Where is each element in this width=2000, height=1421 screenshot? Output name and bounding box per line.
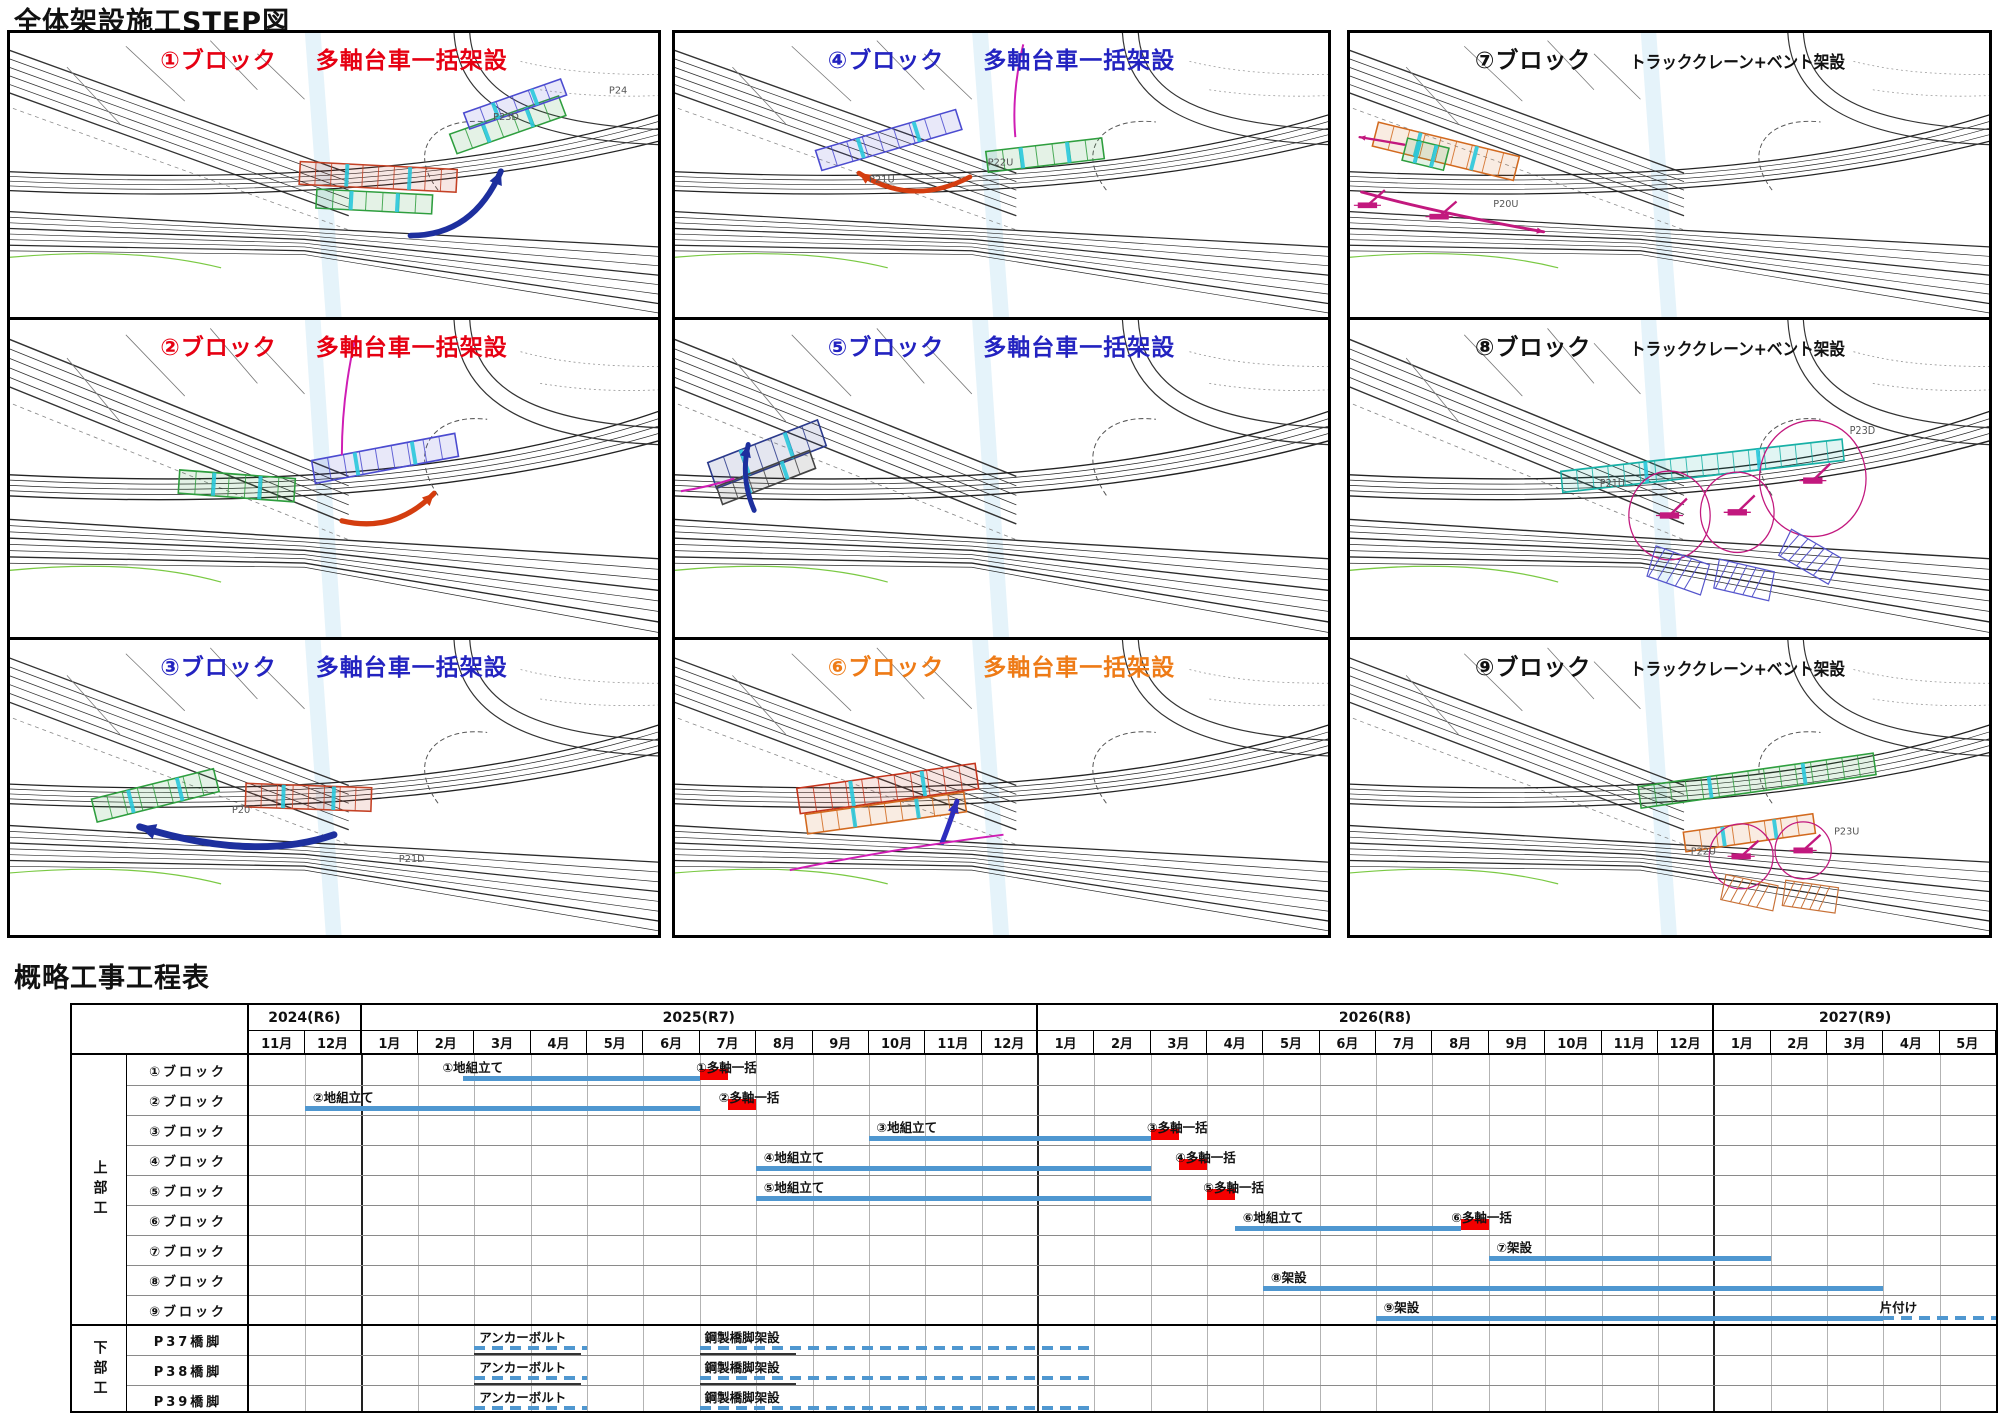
pier-label: P21U [869,175,895,186]
gantt-month-header: 8月 [1432,1031,1488,1055]
gantt-bar-label: アンカーボルト [479,1387,566,1406]
gantt-month-header: 6月 [1320,1031,1376,1055]
pier-label: P23U [1834,827,1859,838]
gantt-gridline [925,1055,926,1411]
gantt-bar-label: 鋼製橋脚架設 [705,1357,780,1376]
gantt-gridline [1658,1055,1659,1411]
gantt-bar-dashed [1883,1316,1996,1320]
movement-arrow [140,827,334,847]
gantt-month-header: 10月 [869,1031,925,1055]
panel-title: ③ブロック 多軸台車一括架設 [10,648,658,682]
gantt-gridline [1432,1055,1433,1411]
gantt-bar-dashed [474,1346,587,1350]
gantt-month-header: 12月 [305,1031,361,1055]
gantt-section-label: 下部工 [72,1325,127,1415]
gantt-row-line [127,1145,1996,1146]
gantt-row-line [127,1085,1996,1086]
gantt-row-label: ①ブロック [127,1055,249,1085]
step-panel-5: ⑤ブロック 多軸台車一括架設 [675,317,1328,637]
girder-block [91,769,219,822]
gantt-gridline [1320,1055,1321,1411]
gantt-gridline [1489,1055,1490,1411]
gantt-gridline [1376,1055,1377,1411]
gantt-month-header: 4月 [531,1031,587,1055]
gantt-row-label: P38橋脚 [127,1355,249,1385]
crane-symbol [1790,835,1821,854]
gantt-gridline [1037,1055,1039,1411]
gantt-bar-dashed [700,1406,1094,1410]
gantt-bar-label: 鋼製橋脚架設 [705,1327,780,1346]
site-plan-svg: P21UP23D [1350,320,1989,637]
panel-method-label: トラッククレーン+ベント架設 [1630,48,1845,73]
site-plan-svg [675,320,1328,637]
girder-block [245,783,371,811]
gantt-gridline [982,1055,983,1411]
panel-block-label: ①ブロック [160,48,276,74]
step-panel-column-middle: P21UP22U ④ブロック 多軸台車一括架設 ⑤ブロック 多軸台車一括架設 ⑥… [672,30,1331,938]
pier-label: P20 [232,805,250,816]
gantt-section-divider [72,1324,1996,1326]
gantt-row-label: ④ブロック [127,1145,249,1175]
step-panel-column-right: P20U ⑦ブロック トラッククレーン+ベント架設 P21UP23D ⑧ブロック… [1347,30,1992,938]
panel-method-label: トラッククレーン+ベント架設 [1630,335,1845,360]
site-plan-drawing: P21UP22U [675,33,1328,317]
gantt-mark-line [474,1383,581,1385]
gantt-month-header: 2月 [1094,1031,1150,1055]
gantt-gridline [1094,1055,1095,1411]
gantt-bar-label: 片付け [1880,1297,1918,1316]
panel-title: ⑤ブロック 多軸台車一括架設 [675,328,1328,362]
gantt-bar-dashed [474,1376,587,1380]
gantt-month-header: 1月 [1038,1031,1094,1055]
gantt-row-line [127,1385,1996,1386]
gantt-row-label: P37橋脚 [127,1325,249,1355]
gantt-month-header: 11月 [1602,1031,1658,1055]
site-plan-drawing: P22UP23U [1350,640,1989,935]
pier-label: P24 [609,86,627,97]
step-panel-9: P22UP23U ⑨ブロック トラッククレーン+ベント架設 [1350,637,1989,935]
gantt-month-header: 5月 [1263,1031,1319,1055]
gantt-bar-dashed [474,1406,587,1410]
panel-title: ④ブロック 多軸台車一括架設 [675,41,1328,75]
gantt-row-label: ⑤ブロック [127,1175,249,1205]
gantt-month-header: 3月 [1827,1031,1883,1055]
panel-block-label: ⑨ブロック [1475,655,1591,681]
site-plan-svg [10,320,658,637]
gantt-month-header: 9月 [813,1031,869,1055]
gantt-bar-label: ⑥多軸一括 [1451,1207,1512,1226]
gantt-month-header: 5月 [1940,1031,1996,1055]
gantt-mark-line [700,1353,796,1355]
gantt-mark-line [474,1353,581,1355]
movement-arrow [1362,192,1544,232]
gantt-bar-label: ⑧架設 [1271,1267,1307,1286]
gantt-bar-label: ①地組立て [443,1057,504,1076]
gantt-bar-label: ③地組立て [877,1117,938,1136]
gantt-month-header: 6月 [643,1031,699,1055]
site-plan-svg: P23DP24 [10,33,658,317]
gantt-bar-label: ⑦架設 [1496,1237,1532,1256]
gantt-month-header: 8月 [756,1031,812,1055]
gantt-gridline [869,1055,870,1411]
gantt-col-separator [126,1055,127,1411]
movement-arrow [342,493,434,524]
site-plan-drawing [675,640,1328,935]
panel-block-label: ⑧ブロック [1475,335,1591,361]
gantt-col-separator [247,1055,249,1411]
gantt-bar-label: ②地組立て [313,1087,374,1106]
panel-method-label: 多軸台車一括架設 [983,648,1175,682]
gantt-section-label: 上部工 [72,1055,127,1325]
gantt-bar-solid [463,1076,700,1081]
girder-block [312,433,459,483]
panel-method-label: 多軸台車一括架設 [983,41,1175,75]
gantt-bar-label: アンカーボルト [479,1327,566,1346]
gantt-month-header: 7月 [1376,1031,1432,1055]
gantt-bar-solid [1263,1286,1883,1291]
gantt-gridline [1545,1055,1546,1411]
gantt-month-header: 7月 [700,1031,756,1055]
site-plan-svg: P20P21D [10,640,658,935]
step-panel-6: ⑥ブロック 多軸台車一括架設 [675,637,1328,935]
step-panel-2: ②ブロック 多軸台車一括架設 [10,317,658,637]
panel-block-label: ⑤ブロック [828,335,944,361]
gantt-bar-label: ⑥地組立て [1243,1207,1304,1226]
crane-symbol [1724,495,1755,515]
gantt-bar-label: ③多軸一括 [1147,1117,1208,1136]
gantt-month-header: 11月 [925,1031,981,1055]
gantt-month-header: 10月 [1545,1031,1601,1055]
gantt-month-header: 1月 [1714,1031,1770,1055]
gantt-year-header: 2025(R7) [362,1005,1038,1031]
site-plan-drawing: P23DP24 [10,33,658,317]
gantt-month-header: 11月 [249,1031,305,1055]
gantt-month-header: 1月 [362,1031,418,1055]
gantt-gridline [813,1055,814,1411]
gantt-bar-label: アンカーボルト [479,1357,566,1376]
gantt-bar-dashed [700,1346,1094,1350]
gantt-row-label: P39橋脚 [127,1385,249,1415]
gantt-year-header: 2027(R9) [1714,1005,1996,1031]
gantt-bar-label: ①多軸一括 [696,1057,757,1076]
pier-label: P23D [493,112,519,123]
pier-label: P22U [1691,846,1716,857]
panel-title: ②ブロック 多軸台車一括架設 [10,328,658,362]
site-plan-svg: P20U [1350,33,1989,317]
gantt-bar-solid [756,1196,1150,1201]
gantt-bar-solid [305,1106,699,1111]
step-panel-7: P20U ⑦ブロック トラッククレーン+ベント架設 [1350,33,1989,317]
gantt-gridline [1883,1055,1884,1411]
panel-title: ⑥ブロック 多軸台車一括架設 [675,648,1328,682]
pier-label: P20U [1493,199,1518,210]
site-plan-svg: P22UP23U [1350,640,1989,935]
panel-method-label: 多軸台車一括架設 [316,328,508,362]
site-plan-svg [675,640,1328,935]
step-panel-column-left: P23DP24 ①ブロック 多軸台車一括架設 ②ブロック 多軸台車一括架設 P2… [7,30,661,938]
gantt-month-header: 2月 [418,1031,474,1055]
gantt-bar-solid [1489,1256,1771,1261]
panel-block-label: ③ブロック [160,655,276,681]
gantt-row-label: ⑥ブロック [127,1205,249,1235]
step-panel-8: P21UP23D ⑧ブロック トラッククレーン+ベント架設 [1350,317,1989,637]
gantt-gridline [1940,1055,1941,1411]
site-plan-drawing [10,320,658,637]
gantt-month-header: 3月 [474,1031,530,1055]
gantt-bar-dashed [700,1376,1094,1380]
panel-title: ⑧ブロック トラッククレーン+ベント架設 [1350,328,1989,362]
panel-method-label: 多軸台車一括架設 [316,648,508,682]
panel-title: ⑨ブロック トラッククレーン+ベント架設 [1350,648,1989,682]
gantt-bar-solid [1235,1226,1460,1231]
gantt-corner-cell [72,1005,249,1055]
gantt-year-header: 2026(R8) [1038,1005,1714,1031]
pier-label: P22U [988,158,1014,169]
gantt-row-line [127,1295,1996,1296]
step-panel-4: P21UP22U ④ブロック 多軸台車一括架設 [675,33,1328,317]
gantt-month-header: 5月 [587,1031,643,1055]
gantt-gridline [1207,1055,1208,1411]
gantt-row-line [127,1175,1996,1176]
panel-block-label: ②ブロック [160,335,276,361]
construction-step-sheet: { "page": { "step_title": "全体架設施工STEP図",… [0,0,2000,1421]
girder-block [178,470,295,502]
gantt-gridline [1827,1055,1828,1411]
gantt-gridline [1771,1055,1772,1411]
bent-staging-area [1782,880,1838,913]
gantt-gridline [700,1055,701,1411]
gantt-bar-solid [756,1166,1150,1171]
panel-method-label: 多軸台車一括架設 [316,41,508,75]
gantt-row-line [127,1235,1996,1236]
gantt-gridline [1151,1055,1152,1411]
gantt-month-header: 2月 [1771,1031,1827,1055]
panel-block-label: ⑦ブロック [1475,48,1591,74]
step-panel-1: P23DP24 ①ブロック 多軸台車一括架設 [10,33,658,317]
gantt-gridline [1713,1055,1715,1411]
gantt-row-label: ②ブロック [127,1085,249,1115]
gantt-row-label: ⑦ブロック [127,1235,249,1265]
panel-title: ⑦ブロック トラッククレーン+ベント架設 [1350,41,1989,75]
pier-label: P21D [399,854,425,865]
site-plan-drawing: P20P21D [10,640,658,935]
gantt-row-label: ③ブロック [127,1115,249,1145]
gantt-month-header: 9月 [1489,1031,1545,1055]
site-plan-drawing [675,320,1328,637]
panel-title: ①ブロック 多軸台車一括架設 [10,41,658,75]
gantt-bar-label: 鋼製橋脚架設 [705,1387,780,1406]
site-plan-drawing: P20U [1350,33,1989,317]
gantt-bar-label: ②多軸一括 [719,1087,780,1106]
gantt-month-header: 12月 [1658,1031,1714,1055]
gantt-month-header: 3月 [1151,1031,1207,1055]
gantt-gridline [1602,1055,1603,1411]
gantt-title: 概略工事工程表 [14,956,210,995]
gantt-bar-label: ④地組立て [764,1147,825,1166]
gantt-month-header: 4月 [1883,1031,1939,1055]
gantt-bar-solid [1376,1316,1883,1321]
site-plan-svg: P21UP22U [675,33,1328,317]
panel-method-label: トラッククレーン+ベント架設 [1630,655,1845,680]
gantt-chart: 2024(R6)11月12月2025(R7)1月2月3月4月5月6月7月8月9月… [70,1003,1998,1413]
step-panel-3: P20P21D ③ブロック 多軸台車一括架設 [10,637,658,935]
gantt-row-line [127,1355,1996,1356]
gantt-bar-label: ⑤多軸一括 [1203,1177,1264,1196]
pier-label: P23D [1850,426,1876,437]
girder-block [1638,753,1876,808]
gantt-bar-label: ⑨架設 [1384,1297,1420,1316]
panel-block-label: ④ブロック [828,48,944,74]
gantt-bar-label: ⑤地組立て [764,1177,825,1196]
gantt-bar-solid [869,1136,1151,1141]
gantt-month-header: 12月 [982,1031,1038,1055]
gantt-row-line [127,1205,1996,1206]
panel-method-label: 多軸台車一括架設 [983,328,1175,362]
gantt-row-label: ⑧ブロック [127,1265,249,1295]
gantt-row-label: ⑨ブロック [127,1295,249,1325]
gantt-bar-label: ④多軸一括 [1175,1147,1236,1166]
gantt-gridline [1263,1055,1264,1411]
site-plan-drawing: P21UP23D [1350,320,1989,637]
gantt-year-header: 2024(R6) [249,1005,362,1031]
panel-block-label: ⑥ブロック [828,655,944,681]
pier-label: P21U [1600,479,1625,490]
gantt-month-header: 4月 [1207,1031,1263,1055]
gantt-row-line [127,1115,1996,1116]
gantt-mark-line [700,1383,796,1385]
gantt-row-line [127,1265,1996,1266]
